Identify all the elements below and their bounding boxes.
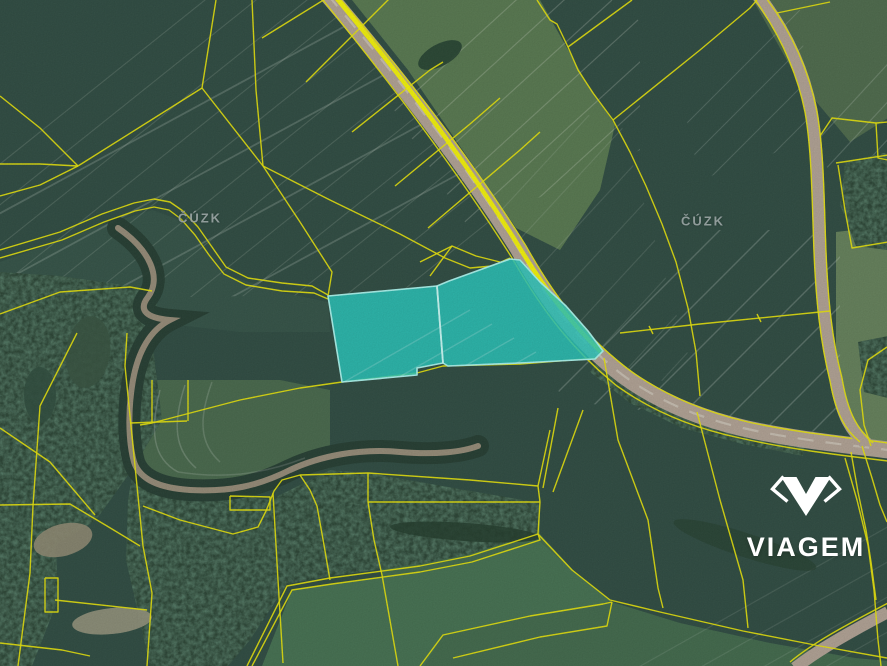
cuzk-watermark: ČÚZK [681,214,725,229]
photo-grain [0,0,887,666]
cuzk-watermark: ČÚZK [178,211,222,226]
map-viewport[interactable]: ČÚZK ČÚZK VIAGEM [0,0,887,666]
viagem-wordmark: VIAGEM [726,532,886,563]
viagem-logo: VIAGEM [726,470,886,563]
viagem-gem-icon [761,470,851,530]
cadastral-map[interactable] [0,0,887,666]
